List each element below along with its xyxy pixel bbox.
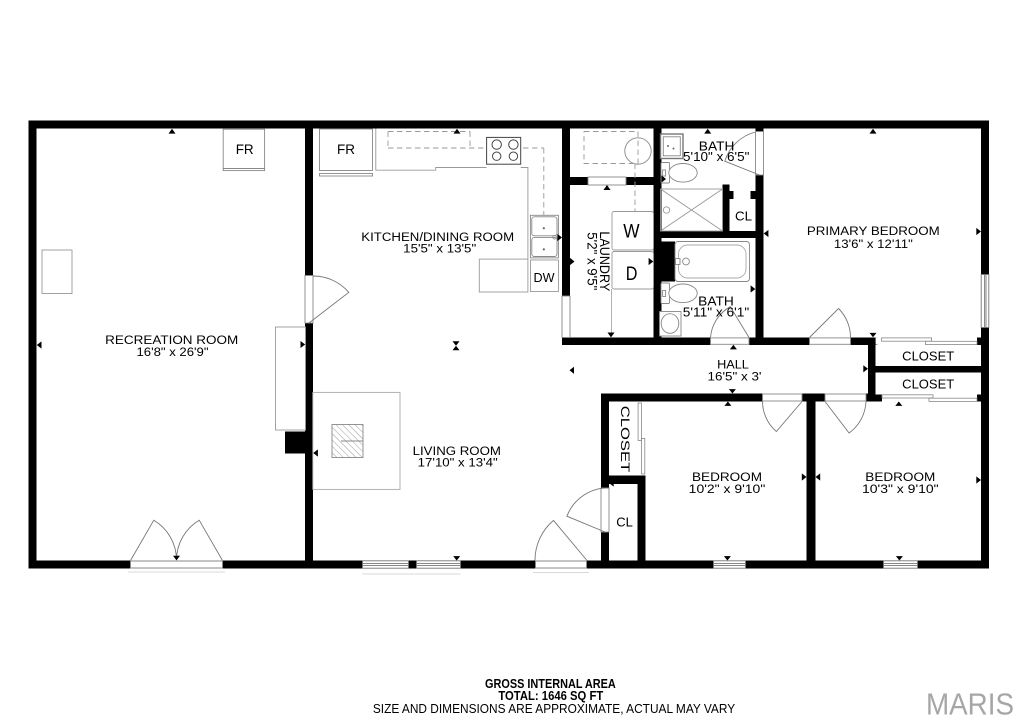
svg-text:MARIS: MARIS xyxy=(926,686,1014,721)
svg-text:16'8" x 26'9": 16'8" x 26'9" xyxy=(137,345,209,359)
svg-text:15'5" x 13'5": 15'5" x 13'5" xyxy=(403,241,476,255)
svg-text:CL: CL xyxy=(735,209,752,223)
svg-text:16'5" x 3': 16'5" x 3' xyxy=(708,370,762,384)
svg-text:W: W xyxy=(623,221,640,243)
svg-text:DW: DW xyxy=(534,271,555,285)
svg-text:17'10" x 13'4": 17'10" x 13'4" xyxy=(418,456,498,470)
svg-text:SIZE AND DIMENSIONS ARE APPROX: SIZE AND DIMENSIONS ARE APPROXIMATE, ACT… xyxy=(373,701,736,716)
svg-text:PRIMARY BEDROOM: PRIMARY BEDROOM xyxy=(807,224,940,238)
svg-text:D: D xyxy=(626,263,638,285)
svg-text:FR: FR xyxy=(236,142,254,157)
svg-text:5'10" x 6'5": 5'10" x 6'5" xyxy=(683,150,749,164)
svg-text:CLOSET: CLOSET xyxy=(902,378,954,392)
svg-text:LAUNDRY5'2" x 9'5": LAUNDRY5'2" x 9'5" xyxy=(584,231,612,291)
svg-text:10'3" x 9'10": 10'3" x 9'10" xyxy=(862,482,939,496)
svg-text:13'6" x 12'11": 13'6" x 12'11" xyxy=(834,237,913,251)
svg-text:5'11" x 6'1": 5'11" x 6'1" xyxy=(683,306,749,320)
svg-text:CLOSET: CLOSET xyxy=(902,349,954,363)
svg-text:FR: FR xyxy=(337,142,355,157)
svg-text:CL: CL xyxy=(616,516,633,530)
svg-text:CLOSET: CLOSET xyxy=(618,406,632,473)
svg-text:10'2" x 9'10": 10'2" x 9'10" xyxy=(689,482,766,496)
